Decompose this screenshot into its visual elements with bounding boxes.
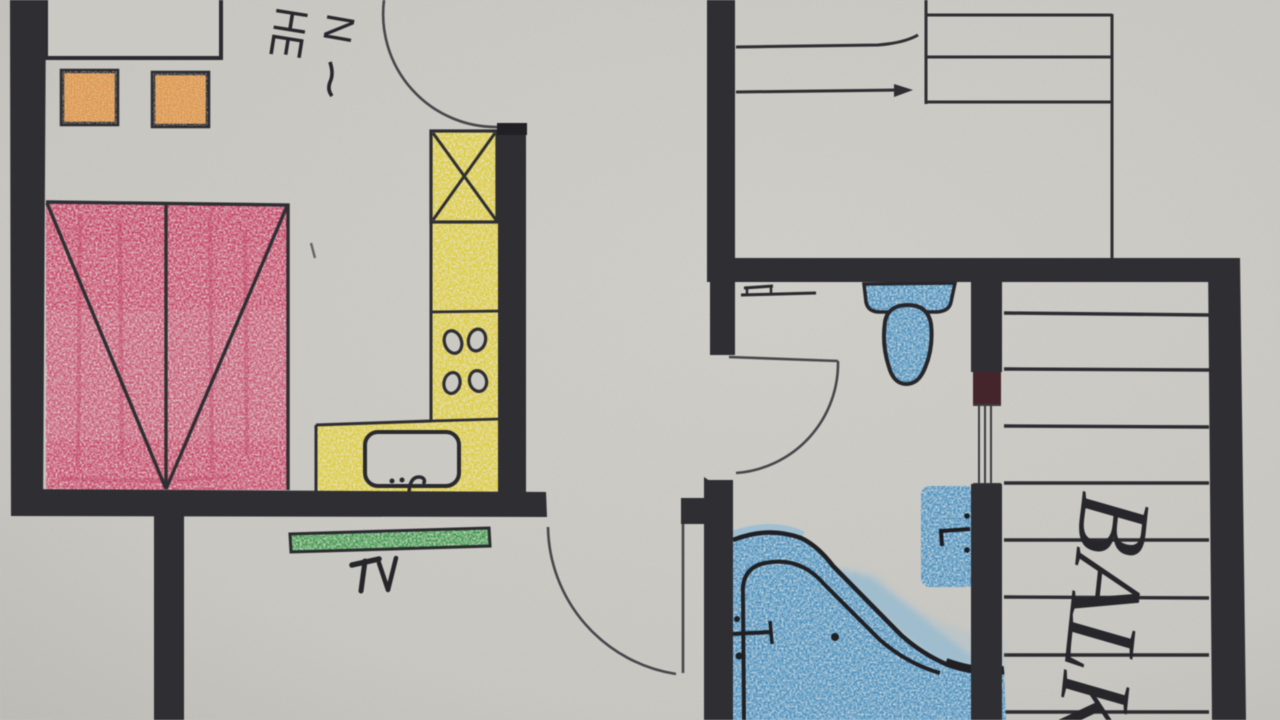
svg-text:HE: HE xyxy=(259,4,318,62)
